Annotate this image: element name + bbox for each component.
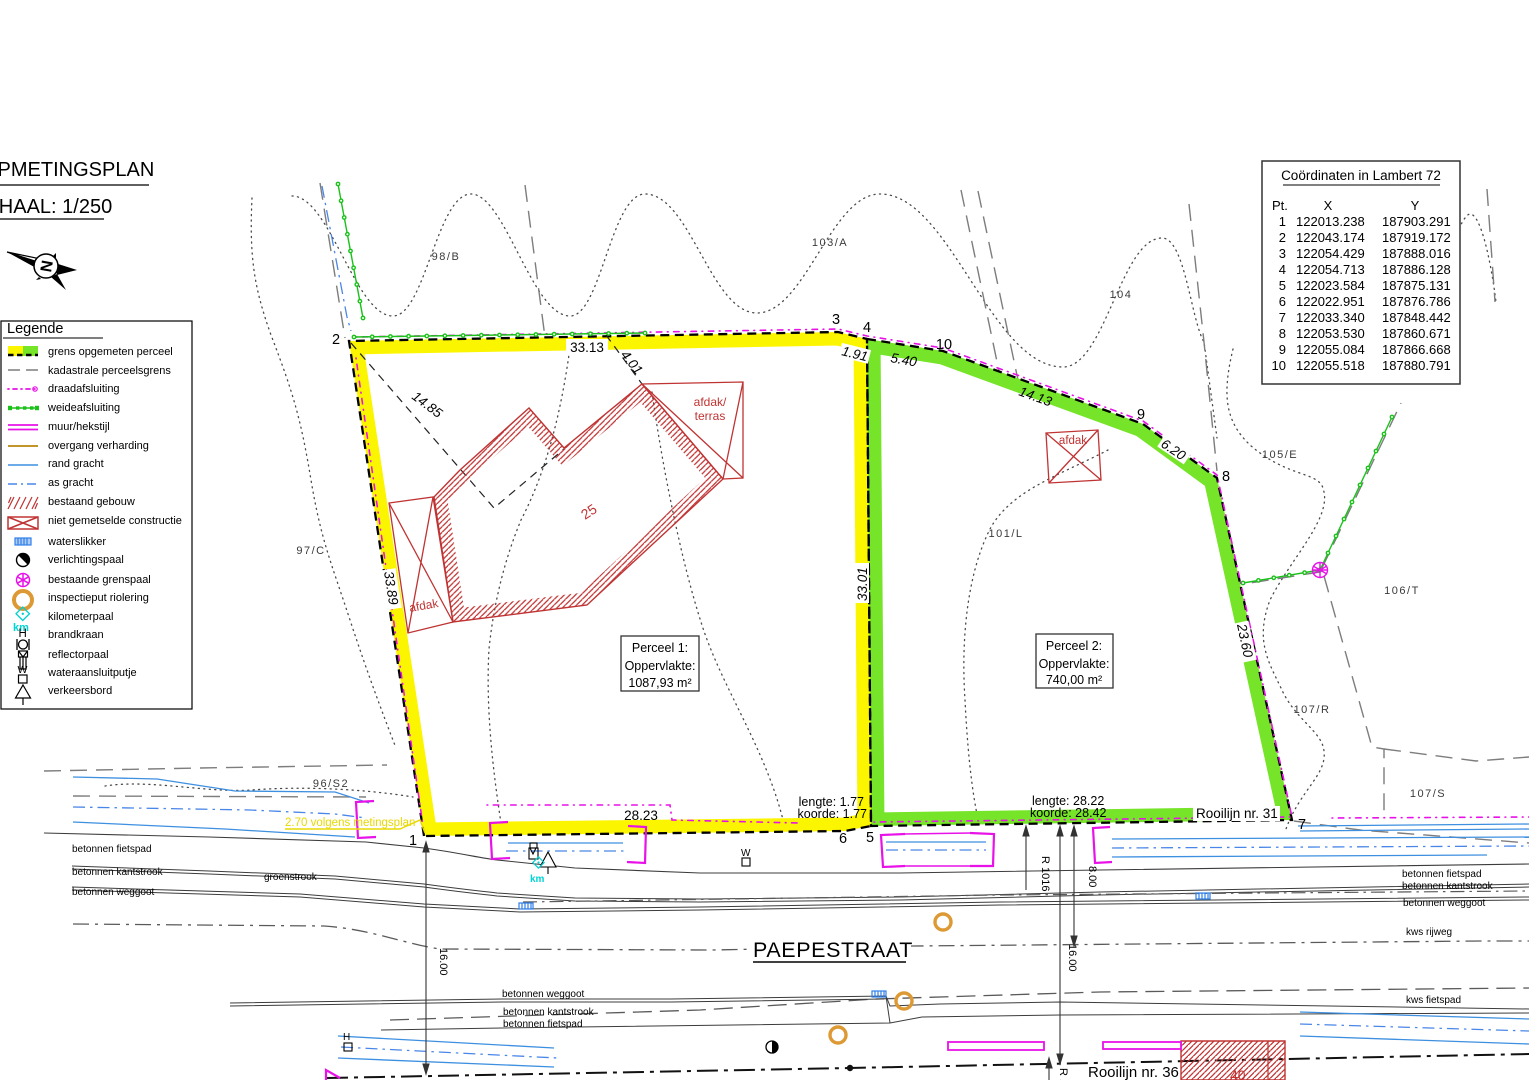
svg-text:betonnen fietspad: betonnen fietspad [503, 1019, 583, 1030]
svg-text:105/E: 105/E [1262, 449, 1298, 461]
svg-text:187875.131: 187875.131 [1382, 278, 1451, 293]
svg-text:122055.084: 122055.084 [1296, 342, 1365, 357]
svg-text:reflectorpaal: reflectorpaal [48, 649, 109, 661]
svg-text:bestaande grenspaal: bestaande grenspaal [48, 574, 151, 586]
svg-text:koorde: 28.42: koorde: 28.42 [1030, 806, 1106, 820]
svg-text:Legende: Legende [7, 321, 63, 337]
svg-text:2.70 volgens metingsplan: 2.70 volgens metingsplan [285, 817, 415, 829]
svg-text:Perceel 2:: Perceel 2: [1046, 639, 1102, 653]
svg-text:bestaand gebouw: bestaand gebouw [48, 496, 135, 508]
svg-text:10: 10 [1272, 358, 1286, 373]
svg-text:1087,93 m²: 1087,93 m² [628, 676, 691, 690]
svg-text:PAEPESTRAAT: PAEPESTRAAT [753, 938, 913, 962]
svg-text:122053.530: 122053.530 [1296, 326, 1365, 341]
svg-text:verlichtingspaal: verlichtingspaal [48, 554, 124, 566]
svg-text:Rooilijn nr. 31: Rooilijn nr. 31 [1196, 806, 1278, 821]
svg-text:107/S: 107/S [1410, 788, 1446, 800]
svg-text:33.13: 33.13 [570, 340, 604, 355]
svg-text:overgang verharding: overgang verharding [48, 440, 149, 452]
svg-text:niet gemetselde constructie: niet gemetselde constructie [48, 515, 182, 527]
svg-text:101/L: 101/L [988, 528, 1023, 540]
svg-text:187860.671: 187860.671 [1382, 326, 1451, 341]
svg-text:187866.668: 187866.668 [1382, 342, 1451, 357]
svg-text:muur/hekstijl: muur/hekstijl [48, 421, 110, 433]
svg-text:98/B: 98/B [432, 251, 461, 263]
svg-text:W: W [741, 848, 751, 859]
svg-text:187880.791: 187880.791 [1382, 358, 1451, 373]
svg-text:afdak: afdak [1059, 435, 1087, 447]
svg-text:Pt.: Pt. [1272, 198, 1288, 213]
svg-text:122013.238: 122013.238 [1296, 214, 1365, 229]
svg-text:122043.174: 122043.174 [1296, 230, 1365, 245]
svg-text:brandkraan: brandkraan [48, 629, 104, 641]
svg-text:2: 2 [332, 332, 340, 348]
svg-text:33.01: 33.01 [855, 567, 870, 601]
svg-text:5: 5 [866, 830, 874, 846]
svg-text:7: 7 [1279, 310, 1286, 325]
svg-text:X: X [1324, 198, 1333, 213]
svg-text:terras: terras [695, 409, 726, 423]
svg-text:1: 1 [409, 833, 417, 849]
svg-text:betonnen weggoot: betonnen weggoot [502, 989, 585, 1000]
svg-text:grens opgemeten perceel: grens opgemeten perceel [48, 346, 173, 358]
svg-text:10: 10 [936, 337, 952, 353]
svg-text:122055.518: 122055.518 [1296, 358, 1365, 373]
svg-text:107/R: 107/R [1294, 704, 1331, 716]
svg-text:740,00 m²: 740,00 m² [1046, 673, 1102, 687]
svg-text:betonnen weggoot: betonnen weggoot [1403, 898, 1486, 909]
svg-text:verkeersbord: verkeersbord [48, 685, 112, 697]
svg-text:betonnen fietspad: betonnen fietspad [1402, 869, 1482, 880]
svg-text:koorde: 1.77: koorde: 1.77 [798, 807, 868, 821]
svg-text:betonnen kantstrook: betonnen kantstrook [503, 1007, 595, 1018]
svg-text:9: 9 [1137, 407, 1145, 423]
svg-text:betonnen kantstrook: betonnen kantstrook [1402, 881, 1494, 892]
svg-text:Perceel 1:: Perceel 1: [632, 641, 688, 655]
svg-text:122022.951: 122022.951 [1296, 294, 1365, 309]
svg-text:3: 3 [1279, 246, 1286, 261]
svg-text:8.00: 8.00 [1086, 866, 1098, 887]
svg-text:Rooilijn nr. 36: Rooilijn nr. 36 [1088, 1064, 1179, 1080]
svg-text:OPMETINGSPLAN: OPMETINGSPLAN [0, 159, 154, 181]
svg-text:122054.429: 122054.429 [1296, 246, 1365, 261]
svg-text:weideafsluiting: weideafsluiting [47, 402, 120, 414]
svg-text:28.23: 28.23 [624, 808, 658, 823]
svg-text:inspectieput riolering: inspectieput riolering [48, 592, 149, 604]
svg-text:wateraansluitputje: wateraansluitputje [47, 667, 137, 679]
svg-text:4: 4 [1279, 262, 1286, 277]
svg-text:betonnen kantstrook: betonnen kantstrook [72, 867, 164, 878]
svg-text:W: W [18, 664, 28, 676]
svg-text:5: 5 [1279, 278, 1286, 293]
svg-text:as gracht: as gracht [48, 477, 93, 489]
svg-text:187888.016: 187888.016 [1382, 246, 1451, 261]
svg-text:kilometerpaal: kilometerpaal [48, 611, 113, 623]
svg-text:187876.786: 187876.786 [1382, 294, 1451, 309]
svg-text:187919.172: 187919.172 [1382, 230, 1451, 245]
svg-text:187848.442: 187848.442 [1382, 310, 1451, 325]
svg-text:97/C: 97/C [296, 545, 325, 557]
svg-text:104: 104 [1110, 289, 1133, 301]
svg-text:187903.291: 187903.291 [1382, 214, 1451, 229]
svg-text:R 1016: R 1016 [1057, 1068, 1069, 1080]
svg-text:afdak/: afdak/ [694, 395, 727, 409]
svg-text:16.00: 16.00 [437, 948, 449, 976]
svg-text:2: 2 [1279, 230, 1286, 245]
svg-text:96/S2: 96/S2 [313, 778, 349, 790]
svg-text:7: 7 [1298, 817, 1306, 833]
svg-text:Coördinaten in Lambert 72: Coördinaten in Lambert 72 [1281, 168, 1441, 183]
svg-text:6: 6 [1279, 294, 1286, 309]
svg-text:Y: Y [1411, 198, 1420, 213]
svg-text:draadafsluiting: draadafsluiting [48, 383, 120, 395]
svg-text:8: 8 [1222, 469, 1230, 485]
svg-text:H: H [19, 628, 27, 640]
svg-text:rand gracht: rand gracht [48, 458, 104, 470]
svg-text:SCHAAL: 1/250: SCHAAL: 1/250 [0, 196, 112, 218]
svg-text:103/A: 103/A [812, 237, 848, 249]
svg-text:H: H [343, 1032, 350, 1043]
svg-text:9: 9 [1279, 342, 1286, 357]
svg-text:16.00: 16.00 [1066, 944, 1078, 972]
svg-text:122033.340: 122033.340 [1296, 310, 1365, 325]
svg-text:106/T: 106/T [1384, 585, 1420, 597]
svg-text:kws fietspad: kws fietspad [1406, 995, 1461, 1006]
svg-text:122023.584: 122023.584 [1296, 278, 1365, 293]
svg-text:1: 1 [1279, 214, 1286, 229]
svg-text:groenstrook: groenstrook [264, 872, 318, 883]
svg-text:waterslikker: waterslikker [47, 536, 106, 548]
svg-text:betonnen weggoot: betonnen weggoot [72, 887, 155, 898]
svg-text:8: 8 [1279, 326, 1286, 341]
svg-text:4: 4 [863, 320, 871, 336]
svg-text:kws rijweg: kws rijweg [1406, 927, 1452, 938]
svg-text:122054.713: 122054.713 [1296, 262, 1365, 277]
svg-text:km: km [530, 874, 545, 885]
svg-text:kadastrale perceelsgrens: kadastrale perceelsgrens [48, 365, 171, 377]
svg-text:Oppervlakte:: Oppervlakte: [1039, 657, 1110, 671]
svg-text:187886.128: 187886.128 [1382, 262, 1451, 277]
svg-text:Oppervlakte:: Oppervlakte: [625, 659, 696, 673]
svg-text:3: 3 [832, 312, 840, 328]
svg-text:betonnen fietspad: betonnen fietspad [72, 844, 152, 855]
svg-text:R 1016: R 1016 [1039, 856, 1051, 891]
svg-text:40: 40 [1230, 1067, 1246, 1080]
svg-text:6: 6 [839, 831, 847, 847]
